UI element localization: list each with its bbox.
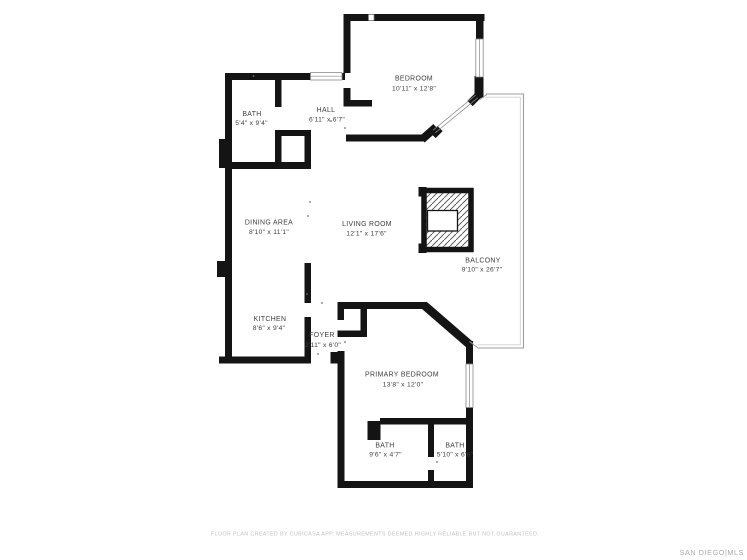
room-dims-bath-lower-right: 5'10" x 6'6" bbox=[437, 452, 474, 459]
room-dims-dining: 8'10" x 11'1" bbox=[249, 229, 289, 236]
floor-plan: BEDROOM 10'11" x 12'8" BATH 5'4" x 9'4" … bbox=[0, 0, 747, 560]
room-label-hall: HALL bbox=[317, 107, 336, 114]
room-dims-bath-lower-left: 9'6" x 4'7" bbox=[369, 452, 402, 459]
mls-watermark: SAN DIEGO|MLS bbox=[680, 548, 744, 557]
room-label-bath-lower-right: BATH bbox=[445, 443, 464, 450]
room-label-living: LIVING ROOM bbox=[342, 221, 392, 228]
disclaimer-text: FLOOR PLAN CREATED BY CUBICASA APP. MEAS… bbox=[211, 532, 539, 538]
fireplace bbox=[419, 187, 472, 253]
room-label-primary-bedroom: PRIMARY BEDROOM bbox=[365, 372, 439, 379]
room-dims-hall: 6'11" x 6'7" bbox=[309, 117, 345, 124]
room-label-bath-upper: BATH bbox=[242, 111, 261, 118]
room-label-kitchen: KITCHEN bbox=[254, 316, 287, 323]
room-label-foyer: FOYER bbox=[309, 332, 335, 339]
room-dims-living: 12'1" x 17'6" bbox=[346, 231, 387, 238]
room-label-dining: DINING AREA bbox=[245, 220, 293, 227]
balcony-railing bbox=[470, 94, 524, 348]
room-dims-primary-bedroom: 13'8" x 12'0" bbox=[383, 382, 424, 389]
room-label-bath-lower-left: BATH bbox=[375, 443, 394, 450]
room-dims-bath-upper: 5'4" x 9'4" bbox=[235, 120, 268, 127]
room-dims-balcony: 9'10" x 26'7" bbox=[462, 267, 503, 274]
room-dims-foyer: 2'11" x 6'0" bbox=[305, 342, 341, 349]
room-label-bedroom: BEDROOM bbox=[395, 76, 433, 83]
room-label-balcony: BALCONY bbox=[465, 258, 500, 265]
fireplace-insert bbox=[428, 211, 458, 232]
room-dims-kitchen: 8'6" x 9'4" bbox=[253, 325, 286, 332]
room-dims-bedroom: 10'11" x 12'8" bbox=[392, 86, 436, 93]
